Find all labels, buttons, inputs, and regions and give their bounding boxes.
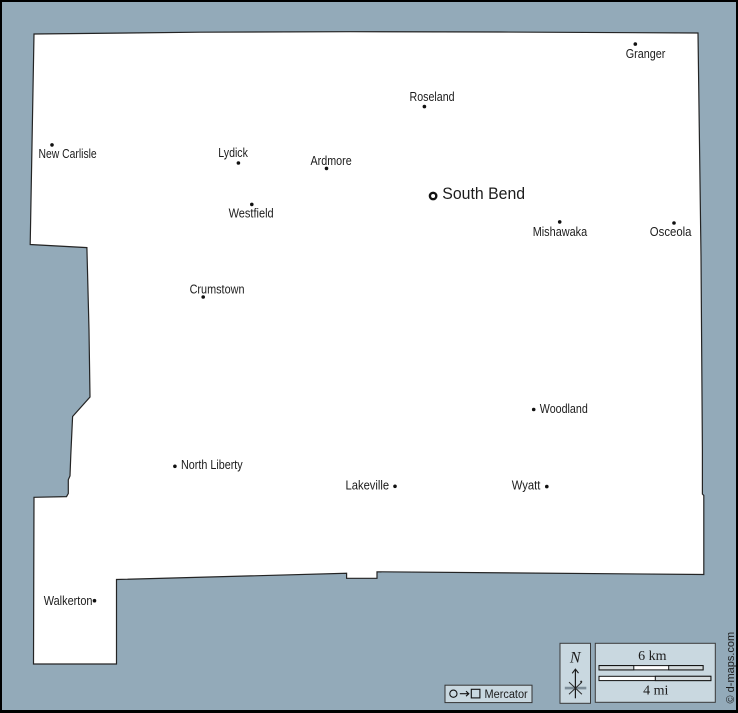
svg-text:N: N (569, 650, 582, 667)
svg-text:Roseland: Roseland (410, 89, 455, 104)
svg-text:© d-maps.com: © d-maps.com (725, 632, 737, 704)
svg-text:New Carlisle: New Carlisle (39, 146, 97, 161)
svg-text:Osceola: Osceola (650, 224, 692, 239)
svg-text:6 km: 6 km (638, 649, 667, 664)
svg-text:South Bend: South Bend (442, 184, 525, 203)
svg-text:Westfield: Westfield (229, 205, 274, 220)
svg-text:Wyatt: Wyatt (512, 478, 541, 493)
svg-text:Mercator: Mercator (485, 689, 528, 701)
svg-text:Lydick: Lydick (218, 145, 248, 160)
svg-text:Crumstown: Crumstown (190, 281, 245, 296)
svg-text:4 mi: 4 mi (643, 684, 668, 699)
svg-text:Granger: Granger (626, 46, 666, 61)
svg-text:Ardmore: Ardmore (311, 153, 352, 168)
svg-text:Woodland: Woodland (540, 401, 588, 416)
svg-text:North Liberty: North Liberty (181, 457, 243, 472)
svg-text:Lakeville: Lakeville (346, 478, 390, 493)
svg-text:Walkerton: Walkerton (44, 593, 93, 608)
svg-text:Mishawaka: Mishawaka (533, 224, 588, 239)
